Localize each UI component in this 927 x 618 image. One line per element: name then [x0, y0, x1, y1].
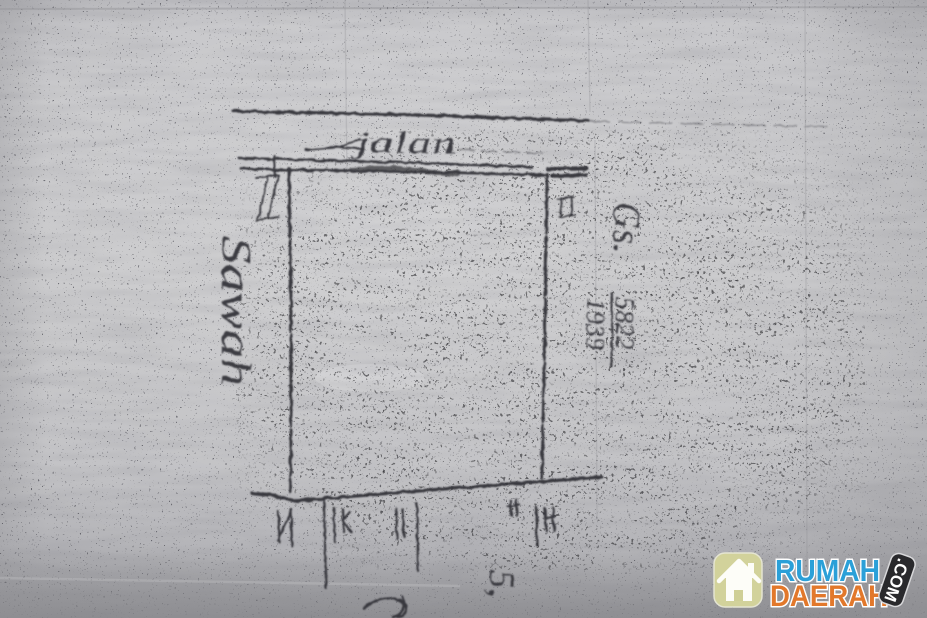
svg-text:1939: 1939 — [581, 298, 610, 350]
svg-text:Sawah: Sawah — [212, 236, 258, 386]
svg-text:jalan: jalan — [350, 125, 456, 160]
svg-text:5,: 5, — [482, 570, 522, 597]
svg-text:DAERAH: DAERAH — [770, 580, 888, 613]
svg-text:Gs.: Gs. — [605, 202, 647, 254]
svg-text:5822: 5822 — [610, 297, 639, 349]
